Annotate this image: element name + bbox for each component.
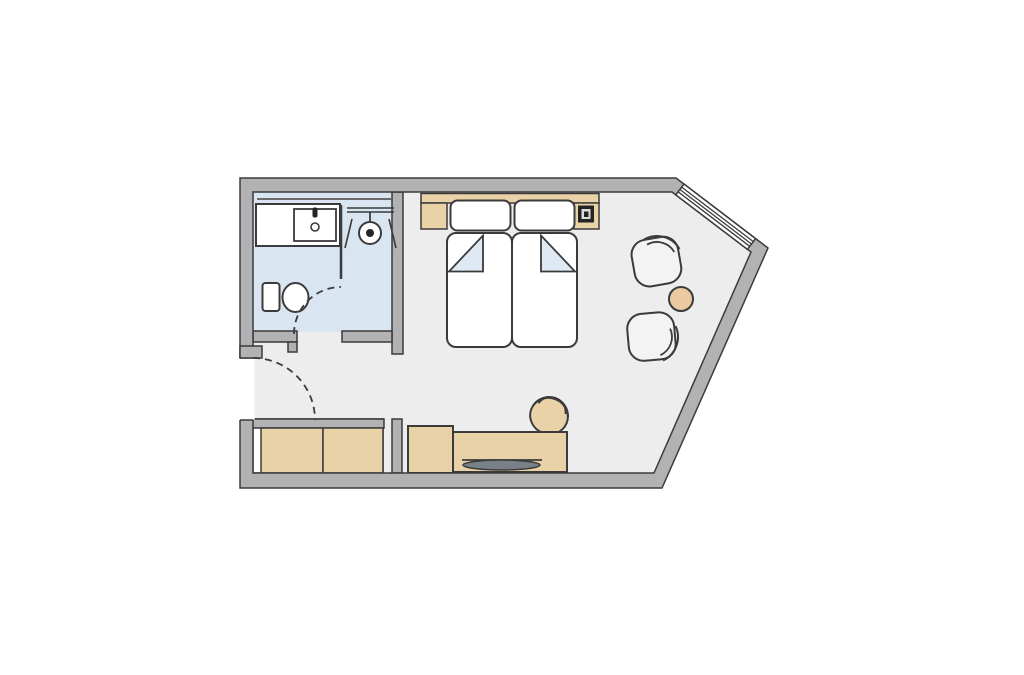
wardrobe-divider xyxy=(392,419,402,473)
round-side-table xyxy=(669,287,693,311)
tv-on-desk xyxy=(463,460,540,470)
wardrobe-back-panel xyxy=(252,419,384,428)
entry-opening xyxy=(238,358,255,420)
armchair-lower xyxy=(626,311,680,364)
shower-head-dot xyxy=(366,229,374,237)
floor-plan xyxy=(0,0,1024,675)
armchair-lower-seat xyxy=(626,311,677,362)
minibar-cabinet xyxy=(408,426,453,473)
entry-wall-cap xyxy=(240,346,262,358)
bathroom-bottom-wall-right xyxy=(342,331,392,342)
bathroom-right-wall xyxy=(392,192,403,354)
bathroom-door-jamb xyxy=(288,342,297,352)
toilet-bowl xyxy=(283,283,309,312)
phone-center xyxy=(584,212,589,218)
pillow-left xyxy=(451,201,511,231)
floor-plan-page xyxy=(0,0,1024,675)
faucet-icon xyxy=(313,208,318,218)
nightstand-left xyxy=(421,203,447,229)
toilet-tank xyxy=(263,283,280,311)
pillow-right xyxy=(515,201,575,231)
wardrobe-section-left xyxy=(261,428,323,473)
bathroom-bottom-wall-left xyxy=(253,331,297,342)
wardrobe-section-right xyxy=(323,428,383,473)
